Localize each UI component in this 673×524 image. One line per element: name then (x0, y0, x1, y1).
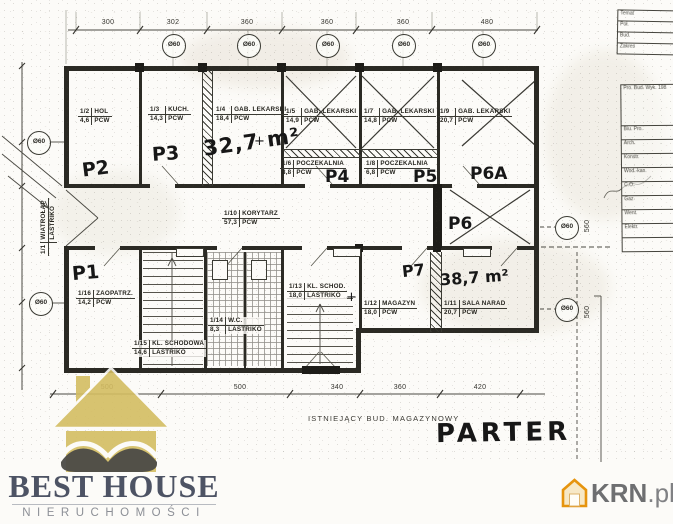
axis-marker-circle: Ø60 (472, 34, 496, 58)
dim-right-2: 560 (584, 297, 592, 327)
room-label-1-12: 1/12MAGAZYN 18,0PCW (362, 300, 417, 317)
column-pier (135, 63, 144, 72)
title-block-row: Gaz (622, 195, 673, 210)
dim-top-6: 480 (472, 19, 502, 27)
unit-label-p5: P5 (413, 167, 437, 187)
wall (359, 66, 362, 188)
wall (356, 328, 361, 373)
best-house-subtitle: NIERUCHOMOŚCI (8, 507, 220, 519)
axis-marker-circle: Ø60 (162, 34, 186, 58)
room-label-1-13: 1/13KL. SCHOD. 18,0LASTRIKO (287, 283, 347, 300)
unit-label-p1: P1 (71, 261, 100, 285)
axis-marker-circle: Ø60 (27, 131, 51, 155)
axis-marker-circle: Ø60 (316, 34, 340, 58)
wall (356, 328, 539, 333)
room-label-1-14: 1/14W.C. 8,3LASTRIKO (208, 317, 264, 334)
room-label-1-2: 1/2HOL 4,6PCW (78, 108, 112, 125)
unit-label-p7: P7 (401, 260, 426, 281)
title-block-main: Pro. Bud. Wyk. 198 Biu. Pro. Arch. Konst… (620, 84, 673, 253)
wall (477, 184, 538, 188)
title-block-row: Biu. Pro. (622, 125, 673, 140)
best-house-house-icon (50, 368, 172, 472)
radiator (463, 248, 491, 257)
wall (175, 184, 305, 188)
scanned-floor-plan: 1/1WIATROŁAP LASTRIKO 1/2HOL 4,6PCW 1/3K… (0, 0, 673, 524)
room-label-1-11: 1/11SALA NARAD 20,7PCW (442, 300, 507, 317)
axis-marker-circle: Ø60 (555, 216, 579, 240)
dim-top-4: 360 (312, 19, 342, 27)
wall (534, 66, 539, 332)
title-block-row (623, 237, 673, 252)
column-pier (198, 63, 207, 72)
room-label-1-10: 1/10KORYTARZ 57,3PCW (222, 210, 280, 227)
krn-house-icon (561, 478, 588, 508)
wall (281, 248, 284, 372)
dim-top-3: 360 (232, 19, 262, 27)
best-house-title: BEST HOUSE (8, 468, 220, 505)
dim-bottom-4: 360 (385, 384, 415, 392)
plus-mark: + (254, 134, 265, 149)
wall (64, 246, 95, 250)
dim-bottom-3: 340 (322, 384, 352, 392)
title-block-row: Konstr. (622, 153, 673, 168)
best-house-divider (12, 504, 216, 505)
axis-marker-circle: Ø60 (237, 34, 261, 58)
wall (64, 66, 69, 188)
krn-text-suffix: .pl (647, 478, 673, 508)
unit-label-p2: P2 (81, 156, 111, 181)
column-pier (355, 63, 364, 72)
best-house-logo: BEST HOUSE NIERUCHOMOŚCI (8, 368, 223, 522)
hatched-wall (430, 252, 442, 332)
krn-logo: KRN.pl (561, 478, 673, 508)
hatched-wall (283, 149, 438, 158)
wall (437, 66, 440, 188)
title-block-row: Went. (622, 209, 673, 224)
dim-top-5: 360 (388, 19, 418, 27)
wall (64, 184, 150, 188)
title-block-row: C.O. (622, 181, 673, 196)
unit-label-p6a: P6A (470, 164, 507, 184)
title-block-row: Arch. (622, 139, 673, 154)
wall (64, 248, 69, 373)
wall (517, 246, 538, 250)
title-block-row: Wod.-kan. (622, 167, 673, 182)
room-label-1-16: 1/16ZAOPATRZ. 14,2PCW (76, 290, 135, 307)
unit-label-p4: P4 (325, 167, 349, 187)
column-pier (433, 244, 441, 252)
room-label-1-3: 1/3KUCH. 14,3PCW (148, 106, 191, 123)
axis-marker-circle: Ø60 (555, 298, 579, 322)
extension-lines (66, 10, 537, 66)
staircase-treads (287, 298, 353, 366)
entry-threshold (302, 366, 340, 374)
room-label-1-1: 1/1WIATROŁAP LASTRIKO (40, 198, 57, 256)
room-label-1-7: 1/7GAB. LEKARSKI 14,8PCW (362, 108, 436, 125)
hatched-wall (202, 70, 213, 186)
wc-fixture (251, 260, 267, 280)
title-block-row: Elektr. (622, 223, 673, 238)
wall (139, 66, 142, 188)
krn-text-main: KRN (591, 478, 647, 508)
unit-label-p3: P3 (151, 142, 180, 166)
wall (242, 246, 302, 250)
column-pier (277, 63, 286, 72)
title-block-header: Pro. Bud. Wyk. 198 (621, 85, 673, 126)
dim-right-1: 560 (584, 211, 592, 241)
dim-top-1: 300 (93, 19, 123, 27)
axis-marker-circle: Ø60 (392, 34, 416, 58)
unit-label-p6: P6 (448, 214, 472, 234)
wall (359, 248, 362, 332)
floor-title-parter: PARTER (436, 417, 572, 449)
axis-marker-circle: Ø60 (29, 292, 53, 316)
radiator (333, 248, 361, 257)
plus-mark: + (346, 290, 357, 305)
room-label-1-4: 1/4GAB. LEKARSKI 18,4PCW (214, 106, 288, 123)
dim-bottom-2: 500 (225, 384, 255, 392)
dim-bottom-5: 420 (465, 384, 495, 392)
solid-wall-chunk (433, 184, 442, 248)
title-block-row: Zakres (618, 42, 673, 54)
room-label-1-15: 1/15KL. SCHODOWA 14,6LASTRIKO (132, 340, 206, 357)
title-block-top: Temat Poł. Bud. Zakres (617, 9, 673, 55)
wc-fixture (212, 260, 228, 280)
room-label-1-9: 1/9GAB. LEKARSKI 20,7PCW (438, 108, 512, 125)
column-pier (433, 63, 442, 72)
radiator (176, 248, 204, 257)
dim-top-2: 302 (158, 19, 188, 27)
